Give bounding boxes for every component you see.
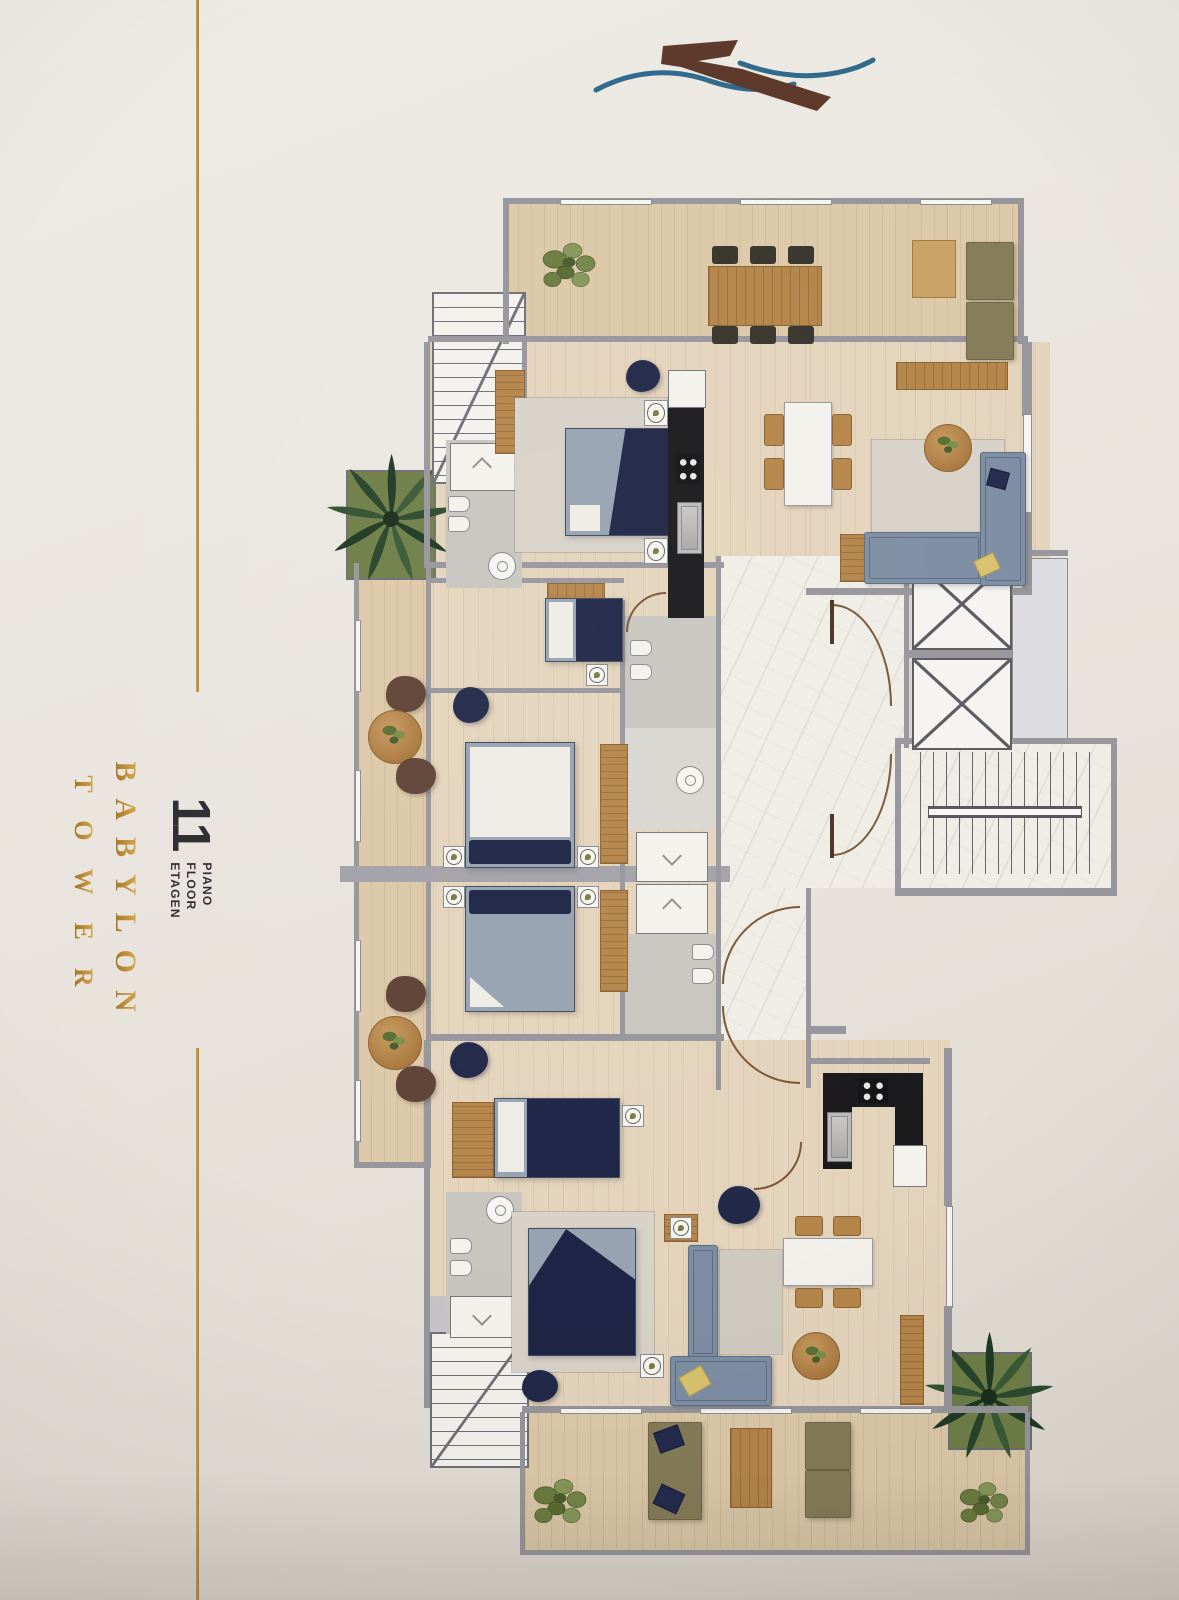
bench (900, 1315, 924, 1405)
bed-sheet (470, 747, 570, 837)
kitchen-counter (895, 1107, 923, 1145)
bidet (448, 516, 470, 532)
wardrobe (452, 1102, 494, 1178)
wall-segment (520, 1550, 1030, 1555)
nightstand-lamp-icon (622, 1105, 644, 1127)
brochure-page: BABYLON TOWER 11 PIANO FLOOR ETAGEN (0, 0, 1179, 1600)
washbasin (488, 552, 516, 580)
wall-segment (1018, 198, 1024, 344)
dining-chair (788, 326, 814, 344)
wall-segment (354, 1162, 430, 1168)
wall-segment (1111, 738, 1117, 896)
outdoor-dining-table (708, 266, 822, 326)
shower-arrow-icon (662, 846, 682, 866)
bed-sheet (570, 505, 600, 531)
bed-pillow (498, 1102, 524, 1172)
bed-pillows (532, 1328, 632, 1352)
nightstand-lamp-icon (644, 400, 668, 426)
floor-lobby (718, 556, 908, 888)
elevator-side-shaft (1012, 558, 1068, 750)
potted-plant (533, 232, 605, 304)
potted-plant (946, 1472, 1022, 1538)
wall-segment (716, 556, 721, 1090)
outdoor-lounge-chair (805, 1422, 851, 1470)
door-leaf (830, 814, 834, 858)
balcony-chair (396, 1066, 436, 1102)
toilet (692, 944, 714, 960)
wall-segment (944, 1048, 952, 1206)
dining-chair (788, 246, 814, 264)
wall-segment (428, 1034, 724, 1041)
dining-chair (832, 458, 852, 490)
fridge (893, 1145, 927, 1187)
window-segment (355, 770, 361, 842)
bed-pillows (469, 890, 571, 914)
bed-pillows (469, 840, 571, 864)
wall-segment (503, 198, 509, 344)
nightstand-lamp-icon (670, 1217, 692, 1239)
side-table (840, 534, 866, 582)
single-bed (494, 1098, 620, 1178)
dining-chair (795, 1216, 823, 1236)
shower (636, 884, 708, 934)
window-segment (860, 1408, 932, 1414)
balcony-chair (386, 976, 426, 1012)
balcony-chair (396, 758, 436, 794)
shower-arrow-icon (472, 1306, 492, 1326)
bed-throw (527, 1099, 619, 1177)
washbasin (486, 1196, 514, 1224)
dining-table (783, 1238, 873, 1286)
toilet (448, 496, 470, 512)
dining-chair (712, 326, 738, 344)
wall-segment (895, 742, 901, 888)
dining-chair (832, 414, 852, 446)
sofa-seat (688, 1245, 718, 1359)
nightstand-lamp-icon (443, 846, 465, 868)
dining-chair (795, 1288, 823, 1308)
nightstand-lamp-icon (577, 846, 599, 868)
stairwell-handrail (928, 806, 1082, 818)
palm-tree-south (922, 1330, 1056, 1464)
bidet (450, 1260, 472, 1276)
double-bed (565, 428, 669, 536)
stove (676, 454, 700, 484)
nightstand-lamp-icon (586, 664, 608, 686)
bathroom-mid-2 (624, 728, 720, 830)
fridge (668, 370, 706, 408)
bed-sheet (470, 977, 504, 1007)
bed-pillow (549, 602, 573, 658)
washbasin (676, 766, 704, 794)
dining-chair (764, 414, 784, 446)
wardrobe (600, 744, 628, 864)
outdoor-coffee-table (730, 1428, 772, 1508)
wardrobe (600, 890, 628, 992)
sofa-seat (864, 532, 984, 584)
bed-throw (576, 599, 622, 661)
window-segment (355, 940, 361, 1012)
elevator-shaft-2 (912, 658, 1012, 750)
shower (636, 832, 708, 882)
kitchen-sink (827, 1112, 852, 1162)
dining-chair (833, 1216, 861, 1236)
window-segment (920, 199, 992, 205)
floor-plan (0, 0, 1179, 1600)
shower (450, 1296, 516, 1338)
outdoor-sofa (966, 242, 1014, 300)
table-plant (372, 1018, 416, 1062)
nightstand-lamp-icon (640, 1354, 664, 1378)
shower-arrow-icon (472, 457, 492, 477)
wall-segment (1025, 1412, 1030, 1555)
table-plant (796, 1334, 836, 1374)
sideboard (896, 362, 1008, 390)
stove (858, 1079, 888, 1103)
double-bed (465, 742, 575, 868)
table-plant (372, 712, 416, 756)
double-bed (528, 1228, 636, 1356)
wall-segment (944, 1306, 952, 1410)
elevator-x-icon (914, 660, 1010, 748)
double-bed (465, 886, 575, 1012)
nightstand-lamp-icon (644, 538, 668, 564)
potted-plant (524, 1466, 596, 1542)
outdoor-coffee-table (912, 240, 956, 298)
kitchen-sink (677, 502, 702, 554)
nightstand-lamp-icon (577, 886, 599, 908)
dining-chair (750, 246, 776, 264)
window-segment (700, 1408, 792, 1414)
window-segment (740, 199, 832, 205)
single-bed (545, 598, 623, 662)
window-segment (560, 1408, 642, 1414)
window-segment (355, 620, 361, 692)
balcony-chair (386, 676, 426, 712)
wall-segment (1022, 342, 1032, 416)
nightstand-lamp-icon (443, 886, 465, 908)
wall-segment (806, 1026, 846, 1034)
bidet (630, 664, 652, 680)
toilet (630, 640, 652, 656)
wall-segment (895, 888, 1117, 896)
bed-throw (609, 429, 668, 535)
bidet (692, 968, 714, 984)
living-rug (720, 1250, 782, 1354)
table-plant (928, 424, 968, 464)
window-segment (560, 199, 652, 205)
outdoor-lounge-chair (805, 1470, 851, 1518)
door-leaf (830, 600, 834, 644)
outdoor-sofa (966, 302, 1014, 360)
dining-chair (750, 326, 776, 344)
dining-table (784, 402, 832, 506)
window-segment (946, 1206, 953, 1308)
dining-chair (712, 246, 738, 264)
dining-chair (764, 458, 784, 490)
wall-segment (810, 1058, 930, 1064)
wall-segment (424, 342, 430, 568)
toilet (450, 1238, 472, 1254)
shower-arrow-icon (662, 898, 682, 918)
dining-chair (833, 1288, 861, 1308)
window-segment (355, 1080, 361, 1142)
